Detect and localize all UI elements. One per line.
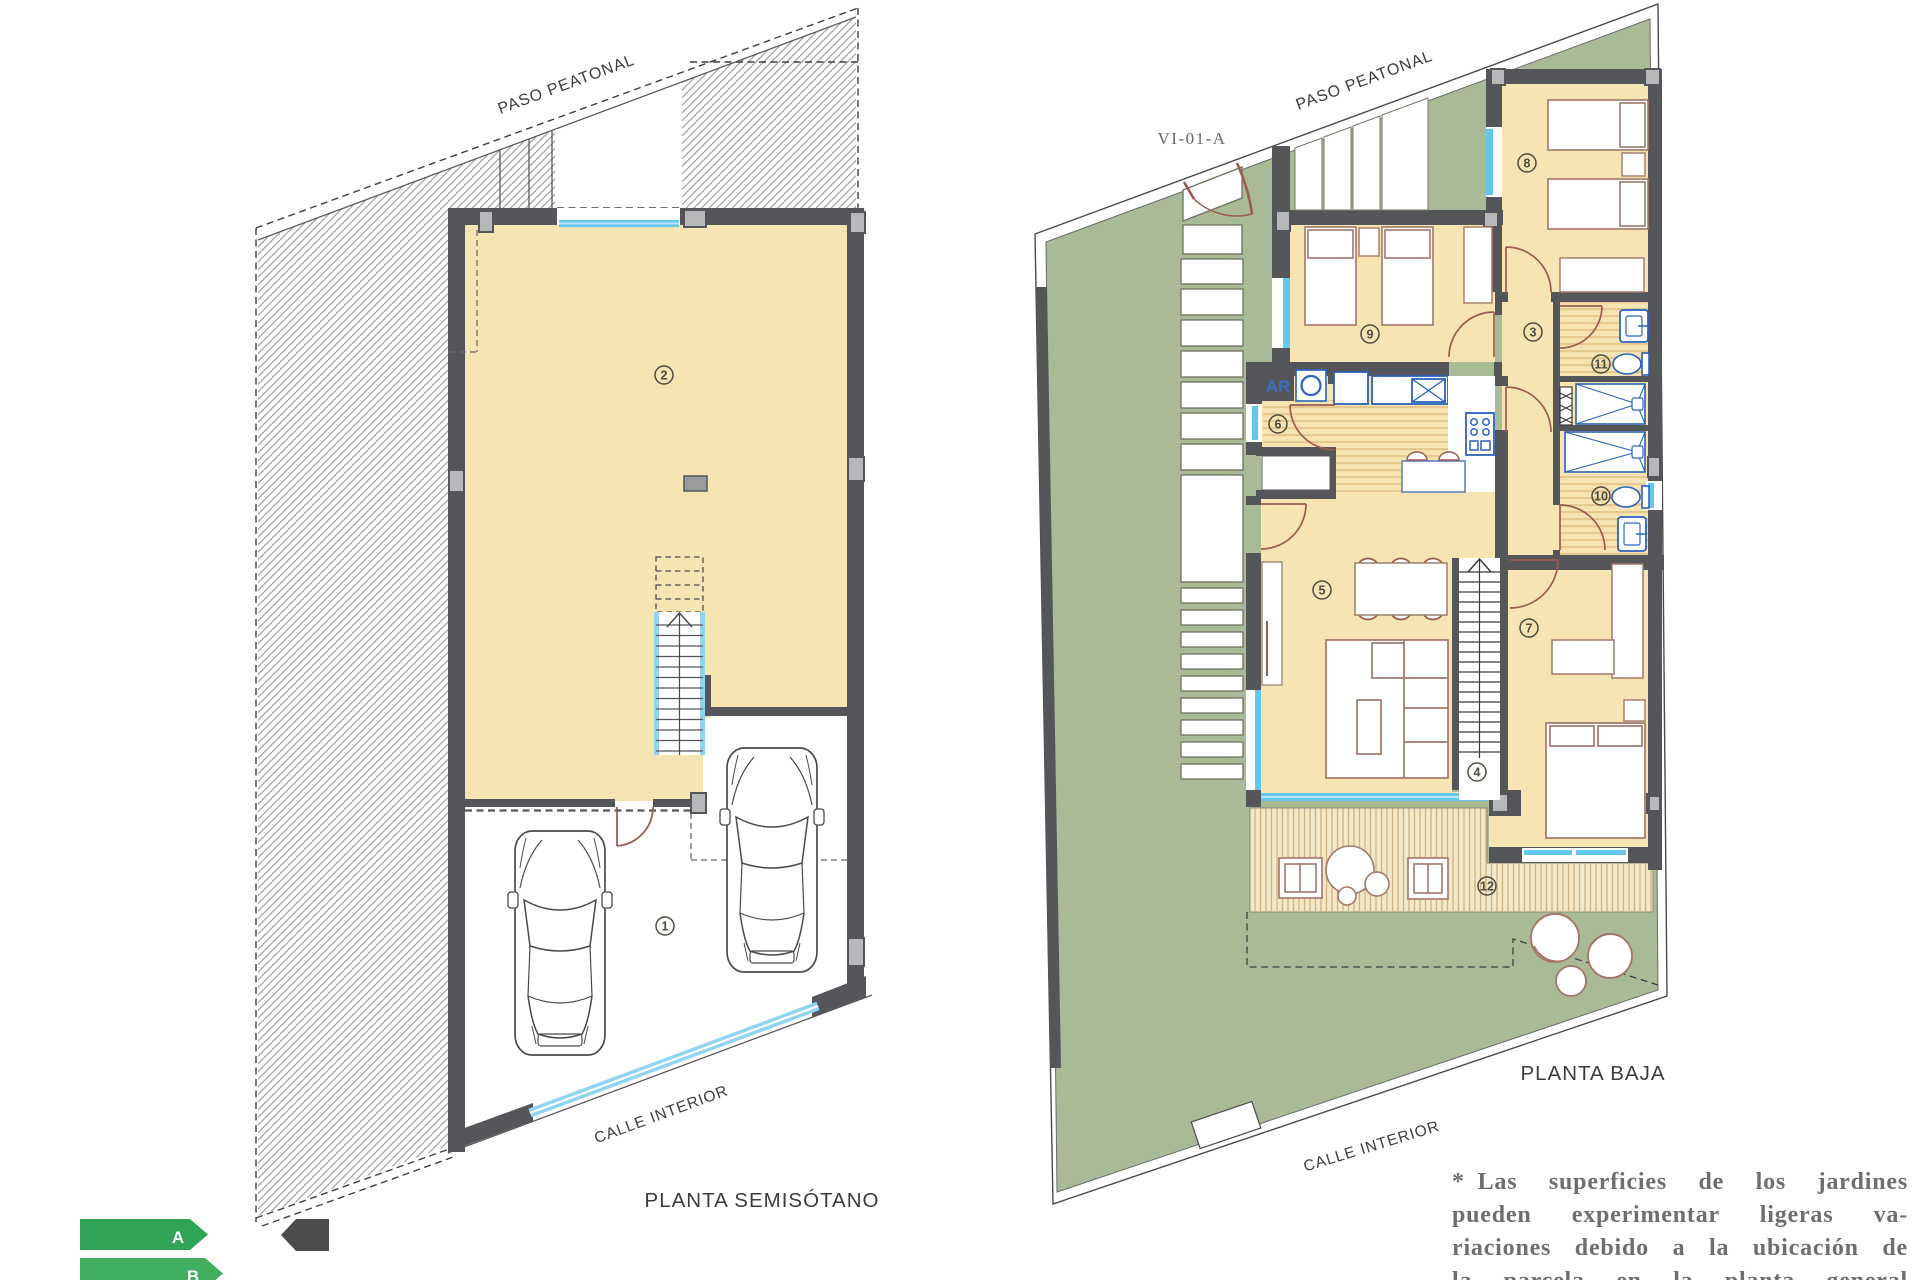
svg-text:8: 8 xyxy=(1524,157,1531,171)
svg-text:7: 7 xyxy=(1526,622,1533,636)
svg-text:10: 10 xyxy=(1594,490,1608,504)
svg-text:3: 3 xyxy=(1530,326,1537,340)
svg-text:11: 11 xyxy=(1594,358,1607,372)
svg-text:5: 5 xyxy=(1319,584,1326,598)
svg-text:A: A xyxy=(172,1228,184,1247)
svg-text:4: 4 xyxy=(1474,766,1481,780)
svg-text:PLANTA BAJA: PLANTA BAJA xyxy=(1520,1062,1665,1085)
svg-text:12: 12 xyxy=(1480,880,1494,894)
svg-text:CALLE INTERIOR: CALLE INTERIOR xyxy=(1302,1118,1442,1176)
svg-text:9: 9 xyxy=(1367,328,1374,342)
svg-text:2: 2 xyxy=(661,369,668,383)
svg-text:6: 6 xyxy=(1275,418,1282,432)
svg-text:VI-01-A: VI-01-A xyxy=(1157,129,1226,148)
svg-text:B: B xyxy=(187,1267,199,1280)
svg-text:AR: AR xyxy=(1266,377,1291,396)
svg-text:PASO PEATONAL: PASO PEATONAL xyxy=(496,52,638,118)
svg-text:PLANTA SEMISÓTANO: PLANTA SEMISÓTANO xyxy=(645,1189,880,1212)
svg-text:1: 1 xyxy=(662,920,669,934)
